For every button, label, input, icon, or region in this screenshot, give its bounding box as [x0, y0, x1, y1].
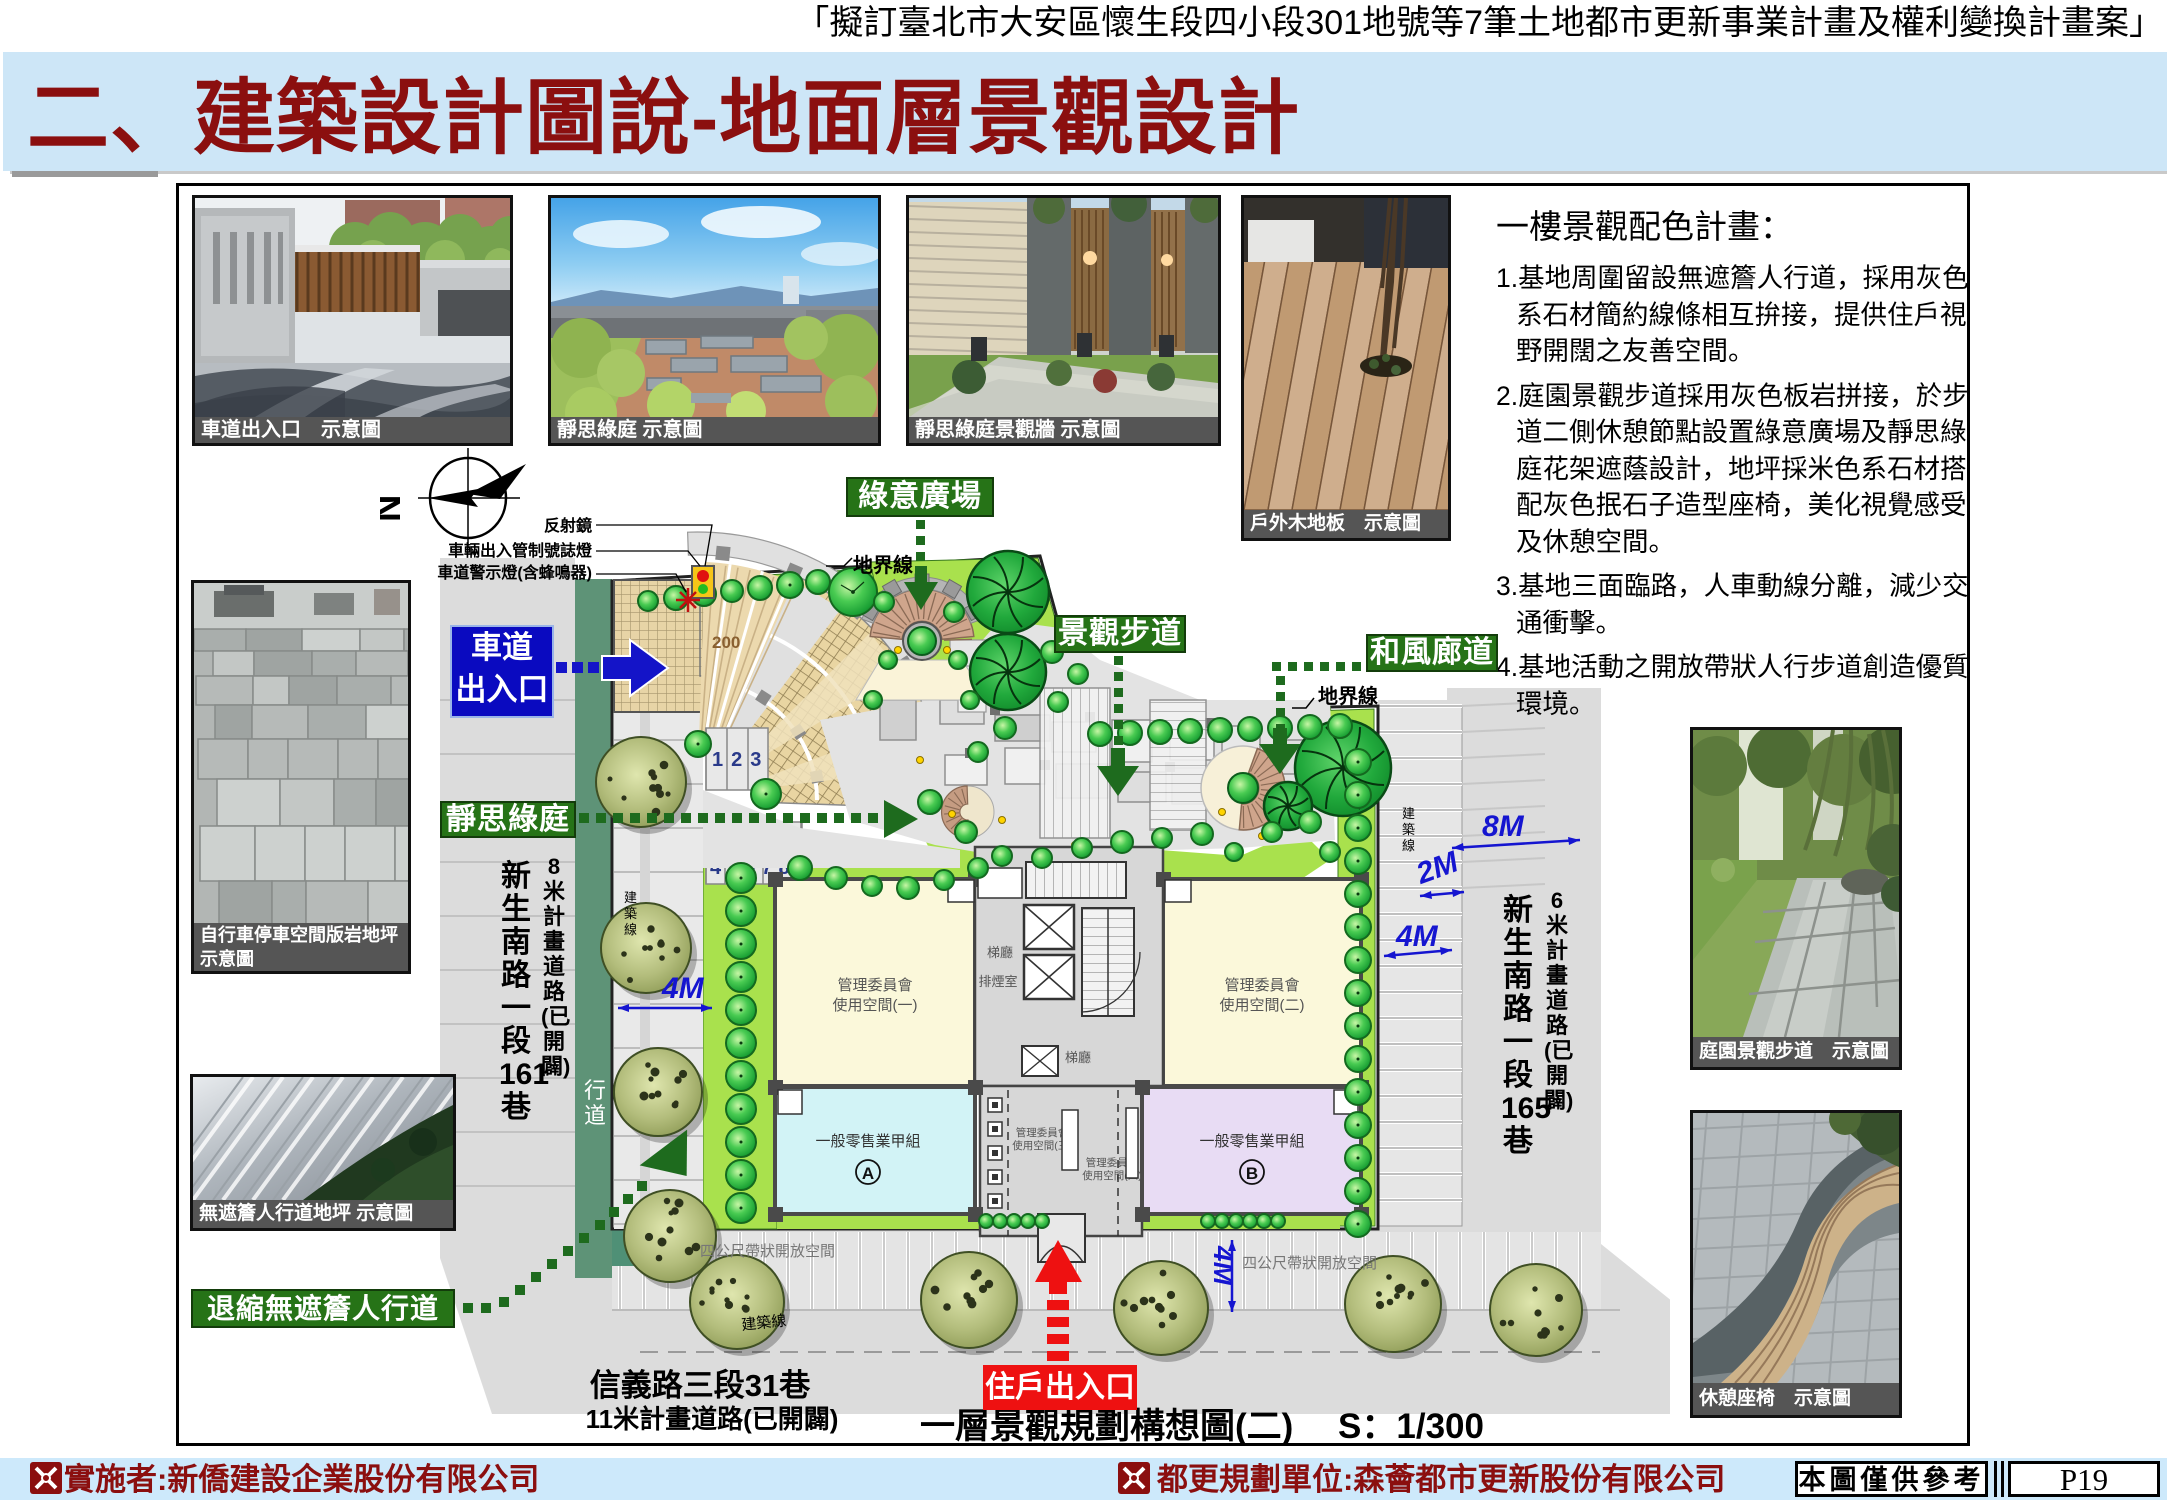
svg-text:使用空間(二): 使用空間(二) [1220, 997, 1305, 1014]
svg-text:四公尺帶狀開放空間: 四公尺帶狀開放空間 [700, 1243, 835, 1260]
svg-text:排煙室: 排煙室 [978, 974, 1017, 989]
svg-text:8M: 8M [1482, 810, 1525, 843]
svg-text:車道警示燈(含蜂鳴器): 車道警示燈(含蜂鳴器) [437, 563, 592, 582]
svg-text:梯廳: 梯廳 [987, 945, 1013, 960]
svg-text:200: 200 [712, 633, 740, 652]
svg-text:4M: 4M [1208, 1245, 1239, 1286]
svg-text:信義路三段31巷: 信義路三段31巷 [590, 1368, 810, 1403]
svg-text:4M: 4M [1395, 920, 1439, 953]
svg-text:地界線: 地界線 [1318, 684, 1378, 708]
svg-text:N: N [380, 495, 409, 522]
svg-text:11米計畫道路(已開闢): 11米計畫道路(已開闢) [586, 1404, 839, 1434]
svg-text:管理委員會: 管理委員會 [837, 977, 912, 994]
svg-text:管理委員會: 管理委員會 [1016, 1126, 1069, 1139]
svg-text:一般零售業甲組: 一般零售業甲組 [815, 1133, 920, 1150]
svg-text:123: 123 [712, 749, 769, 771]
svg-text:管理委員會: 管理委員會 [1224, 977, 1299, 994]
svg-text:一層景觀規劃構想圖(二) S：1/300: 一層景觀規劃構想圖(二) S：1/300 [920, 1407, 1484, 1446]
svg-text:地界線: 地界線 [853, 553, 913, 577]
svg-text:使用空間(一): 使用空間(一) [833, 997, 918, 1014]
svg-text:一般零售業甲組: 一般零售業甲組 [1199, 1133, 1304, 1150]
svg-text:車輛出入管制號誌燈: 車輛出入管制號誌燈 [448, 541, 593, 560]
svg-text:A: A [862, 1164, 874, 1183]
svg-text:梯廳: 梯廳 [1065, 1050, 1091, 1065]
svg-text:四公尺帶狀開放空間: 四公尺帶狀開放空間 [1242, 1255, 1377, 1272]
svg-text:反射鏡: 反射鏡 [544, 516, 592, 535]
svg-text:4M: 4M [661, 972, 705, 1005]
svg-text:B: B [1246, 1164, 1258, 1183]
